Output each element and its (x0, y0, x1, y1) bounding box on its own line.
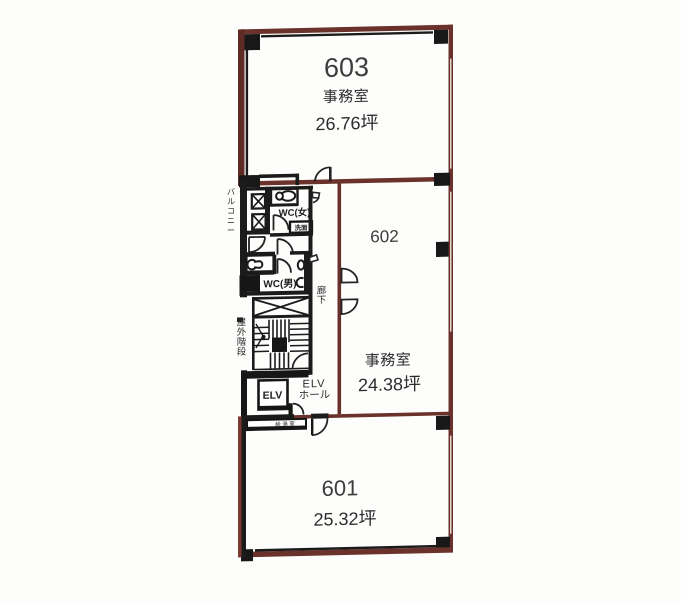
svg-text:26.76坪: 26.76坪 (315, 113, 378, 134)
svg-text:事務室: 事務室 (323, 88, 370, 106)
svg-text:25.32坪: 25.32坪 (313, 508, 376, 529)
svg-text:洗面: 洗面 (295, 223, 308, 232)
svg-text:廊下: 廊下 (317, 284, 327, 306)
svg-text:バルコニー: バルコニー (227, 188, 235, 236)
svg-text:屋外階段: 屋外階段 (237, 317, 247, 358)
svg-text:WC(女): WC(女) (279, 206, 311, 219)
svg-text:事務室: 事務室 (365, 352, 412, 370)
svg-text:WC(男): WC(男) (263, 278, 296, 291)
svg-text:24.38坪: 24.38坪 (358, 374, 421, 395)
svg-text:602: 602 (370, 227, 398, 247)
svg-text:603: 603 (324, 52, 369, 83)
svg-text:ホール: ホール (299, 389, 330, 402)
svg-text:601: 601 (322, 475, 359, 501)
svg-text:ELV: ELV (263, 389, 283, 401)
